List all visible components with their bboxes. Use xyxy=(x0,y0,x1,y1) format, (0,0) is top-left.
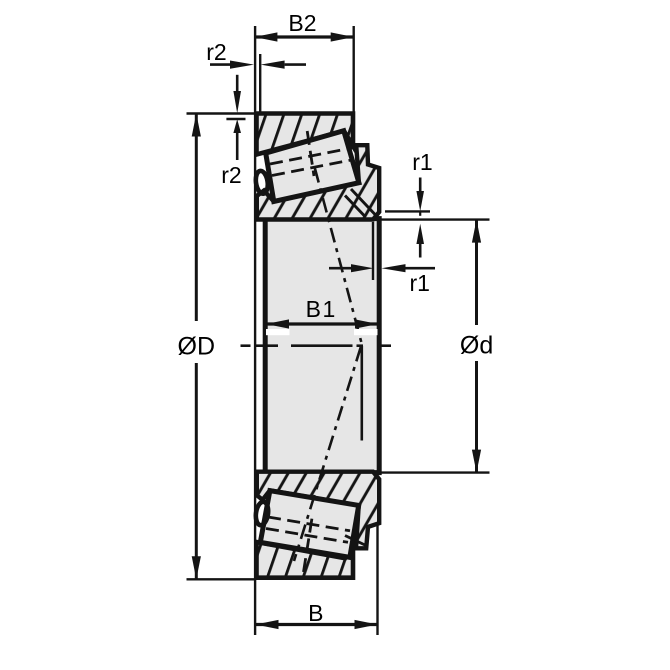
svg-text:Ød: Ød xyxy=(460,332,493,360)
svg-text:r2: r2 xyxy=(206,39,226,65)
svg-text:r1: r1 xyxy=(412,149,432,175)
svg-text:B1: B1 xyxy=(306,296,337,322)
svg-text:B2: B2 xyxy=(288,10,316,36)
svg-text:r2: r2 xyxy=(221,162,241,188)
svg-text:ØD: ØD xyxy=(178,333,216,361)
svg-text:B: B xyxy=(308,600,323,626)
svg-text:r1: r1 xyxy=(409,270,429,296)
